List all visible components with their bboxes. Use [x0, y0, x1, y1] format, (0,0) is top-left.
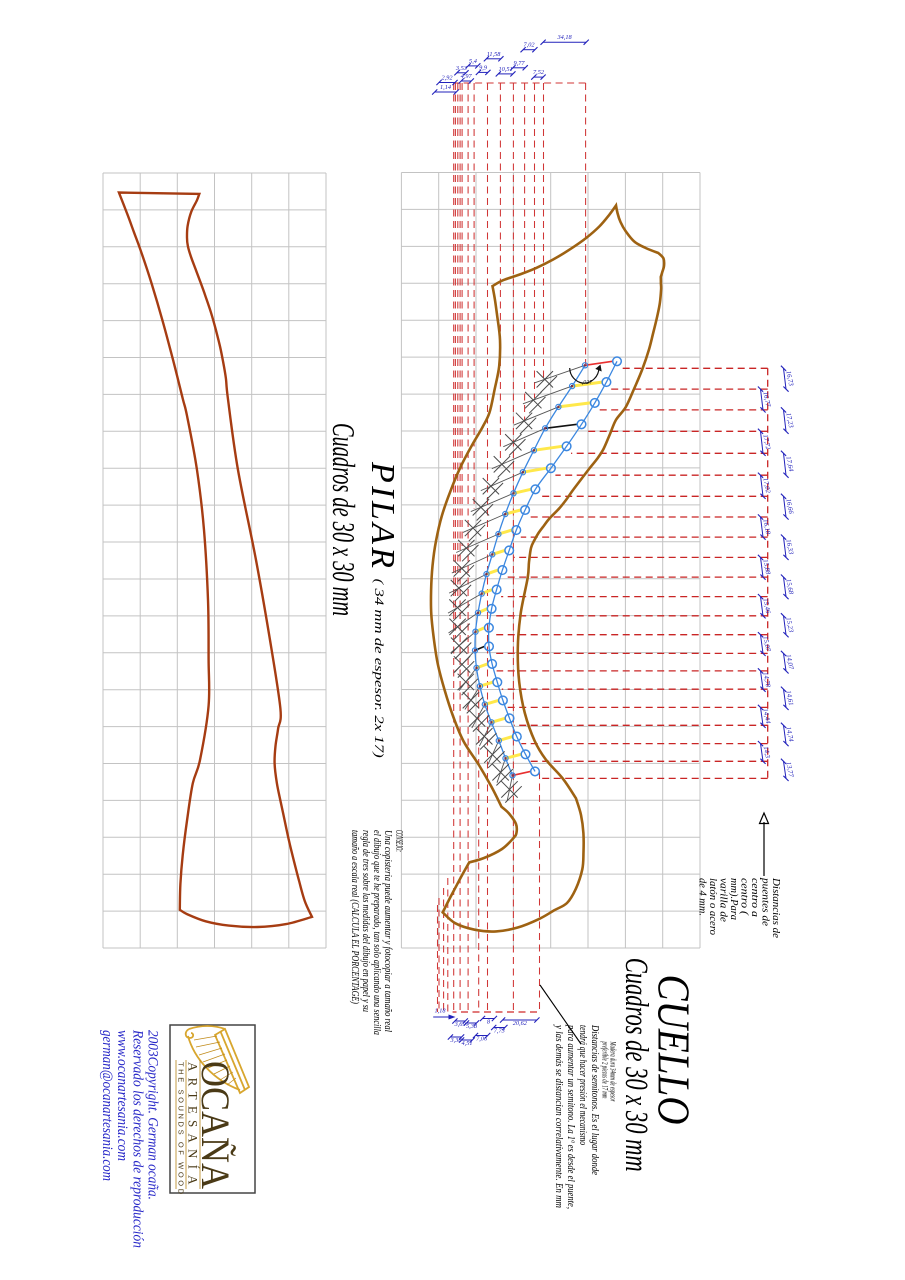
svg-text:9,9: 9,9: [479, 64, 488, 71]
svg-text:14,3: 14,3: [762, 746, 771, 760]
svg-text:ARTESANÍA: ARTESANÍA: [186, 1062, 201, 1191]
svg-text:centro (: centro (: [739, 878, 750, 917]
svg-text:latón o acero: latón o acero: [707, 878, 718, 935]
svg-text:4,97: 4,97: [461, 73, 473, 80]
svg-text:y las demás se distancian corr: y las demás se distancian correlativamen…: [553, 1024, 564, 1208]
svg-text:www.ocanartesania.com: www.ocanartesania.com: [114, 1030, 130, 1161]
svg-text:8: 8: [487, 1019, 491, 1026]
svg-text:4,51: 4,51: [461, 1040, 472, 1047]
svg-text:( 34 mm de espesor. 2x 17): ( 34 mm de espesor. 2x 17): [372, 579, 386, 758]
svg-text:5,38: 5,38: [466, 1023, 478, 1030]
svg-text:CUELLO: CUELLO: [649, 975, 700, 1125]
svg-text:CONSEJO:: CONSEJO:: [393, 830, 404, 852]
svg-text:Distancias de semitonos. Es el: Distancias de semitonos. Es el lugar don…: [589, 1024, 600, 1175]
svg-text:Cuadros de 30 x 30 mm: Cuadros de 30 x 30 mm: [618, 958, 654, 1172]
svg-text:9,77: 9,77: [513, 60, 525, 67]
svg-text:5,4: 5,4: [469, 58, 477, 65]
svg-text:3,53: 3,53: [455, 65, 467, 72]
svg-text:Distancias de: Distancias de: [770, 877, 781, 938]
svg-text:2,92: 2,92: [441, 75, 453, 82]
svg-text:7,06: 7,06: [476, 1036, 488, 1043]
svg-text:german@ocanartesania.com: german@ocanartesania.com: [99, 1030, 115, 1181]
svg-text:para aumentar un semitono. La: para aumentar un semitono. La 1ª es desd…: [565, 1024, 576, 1209]
svg-text:tendrá que hacer presión el me: tendrá que hacer presión el mecanismo: [577, 1025, 588, 1145]
svg-text:2003Copyright. German ocaña.: 2003Copyright. German ocaña.: [145, 1030, 161, 1200]
svg-text:preferible 2 piezas de 17 mm: preferible 2 piezas de 17 mm: [601, 1041, 611, 1099]
svg-text:puentes de: puentes de: [760, 877, 771, 926]
svg-text:varilla de: varilla de: [718, 878, 729, 922]
svg-text:7,52: 7,52: [533, 69, 545, 76]
svg-text:20,62: 20,62: [513, 1020, 528, 1027]
svg-text:el dibujo que te he preparado,: el dibujo que te he preparado, tan solo …: [371, 830, 382, 1035]
svg-text:1,18: 1,18: [434, 1008, 446, 1015]
svg-text:1,14: 1,14: [440, 84, 451, 91]
svg-text:Una copisteria puede aumentar: Una copisteria puede aumentar y fotocopi…: [382, 830, 393, 1032]
svg-text:7,73: 7,73: [494, 1028, 505, 1035]
svg-text:centro a: centro a: [749, 878, 760, 917]
svg-text:Cuadros de 30 x 30 mm: Cuadros de 30 x 30 mm: [326, 423, 362, 616]
svg-text:THE SOUNDS OF WOOD: THE SOUNDS OF WOOD: [177, 1062, 186, 1197]
svg-text:de 4 mm.: de 4 mm.: [697, 878, 708, 916]
svg-text:7,02: 7,02: [523, 42, 535, 49]
svg-text:regla de tres sobre las medida: regla de tres sobre las medidas del dibu…: [360, 830, 371, 1012]
svg-text:11,58: 11,58: [487, 51, 502, 58]
svg-text:PILAR: PILAR: [364, 461, 401, 568]
svg-text:,027: ,027: [582, 380, 594, 386]
svg-text:mm).Para: mm).Para: [728, 878, 739, 920]
svg-text:34,18: 34,18: [557, 34, 573, 41]
svg-text:tamaño a escala real (CALCULA: tamaño a escala real (CALCULA EL PORCENT…: [349, 830, 360, 1005]
svg-text:Reservado los derechos de repr: Reservado los derechos de reproducción: [129, 1029, 145, 1248]
